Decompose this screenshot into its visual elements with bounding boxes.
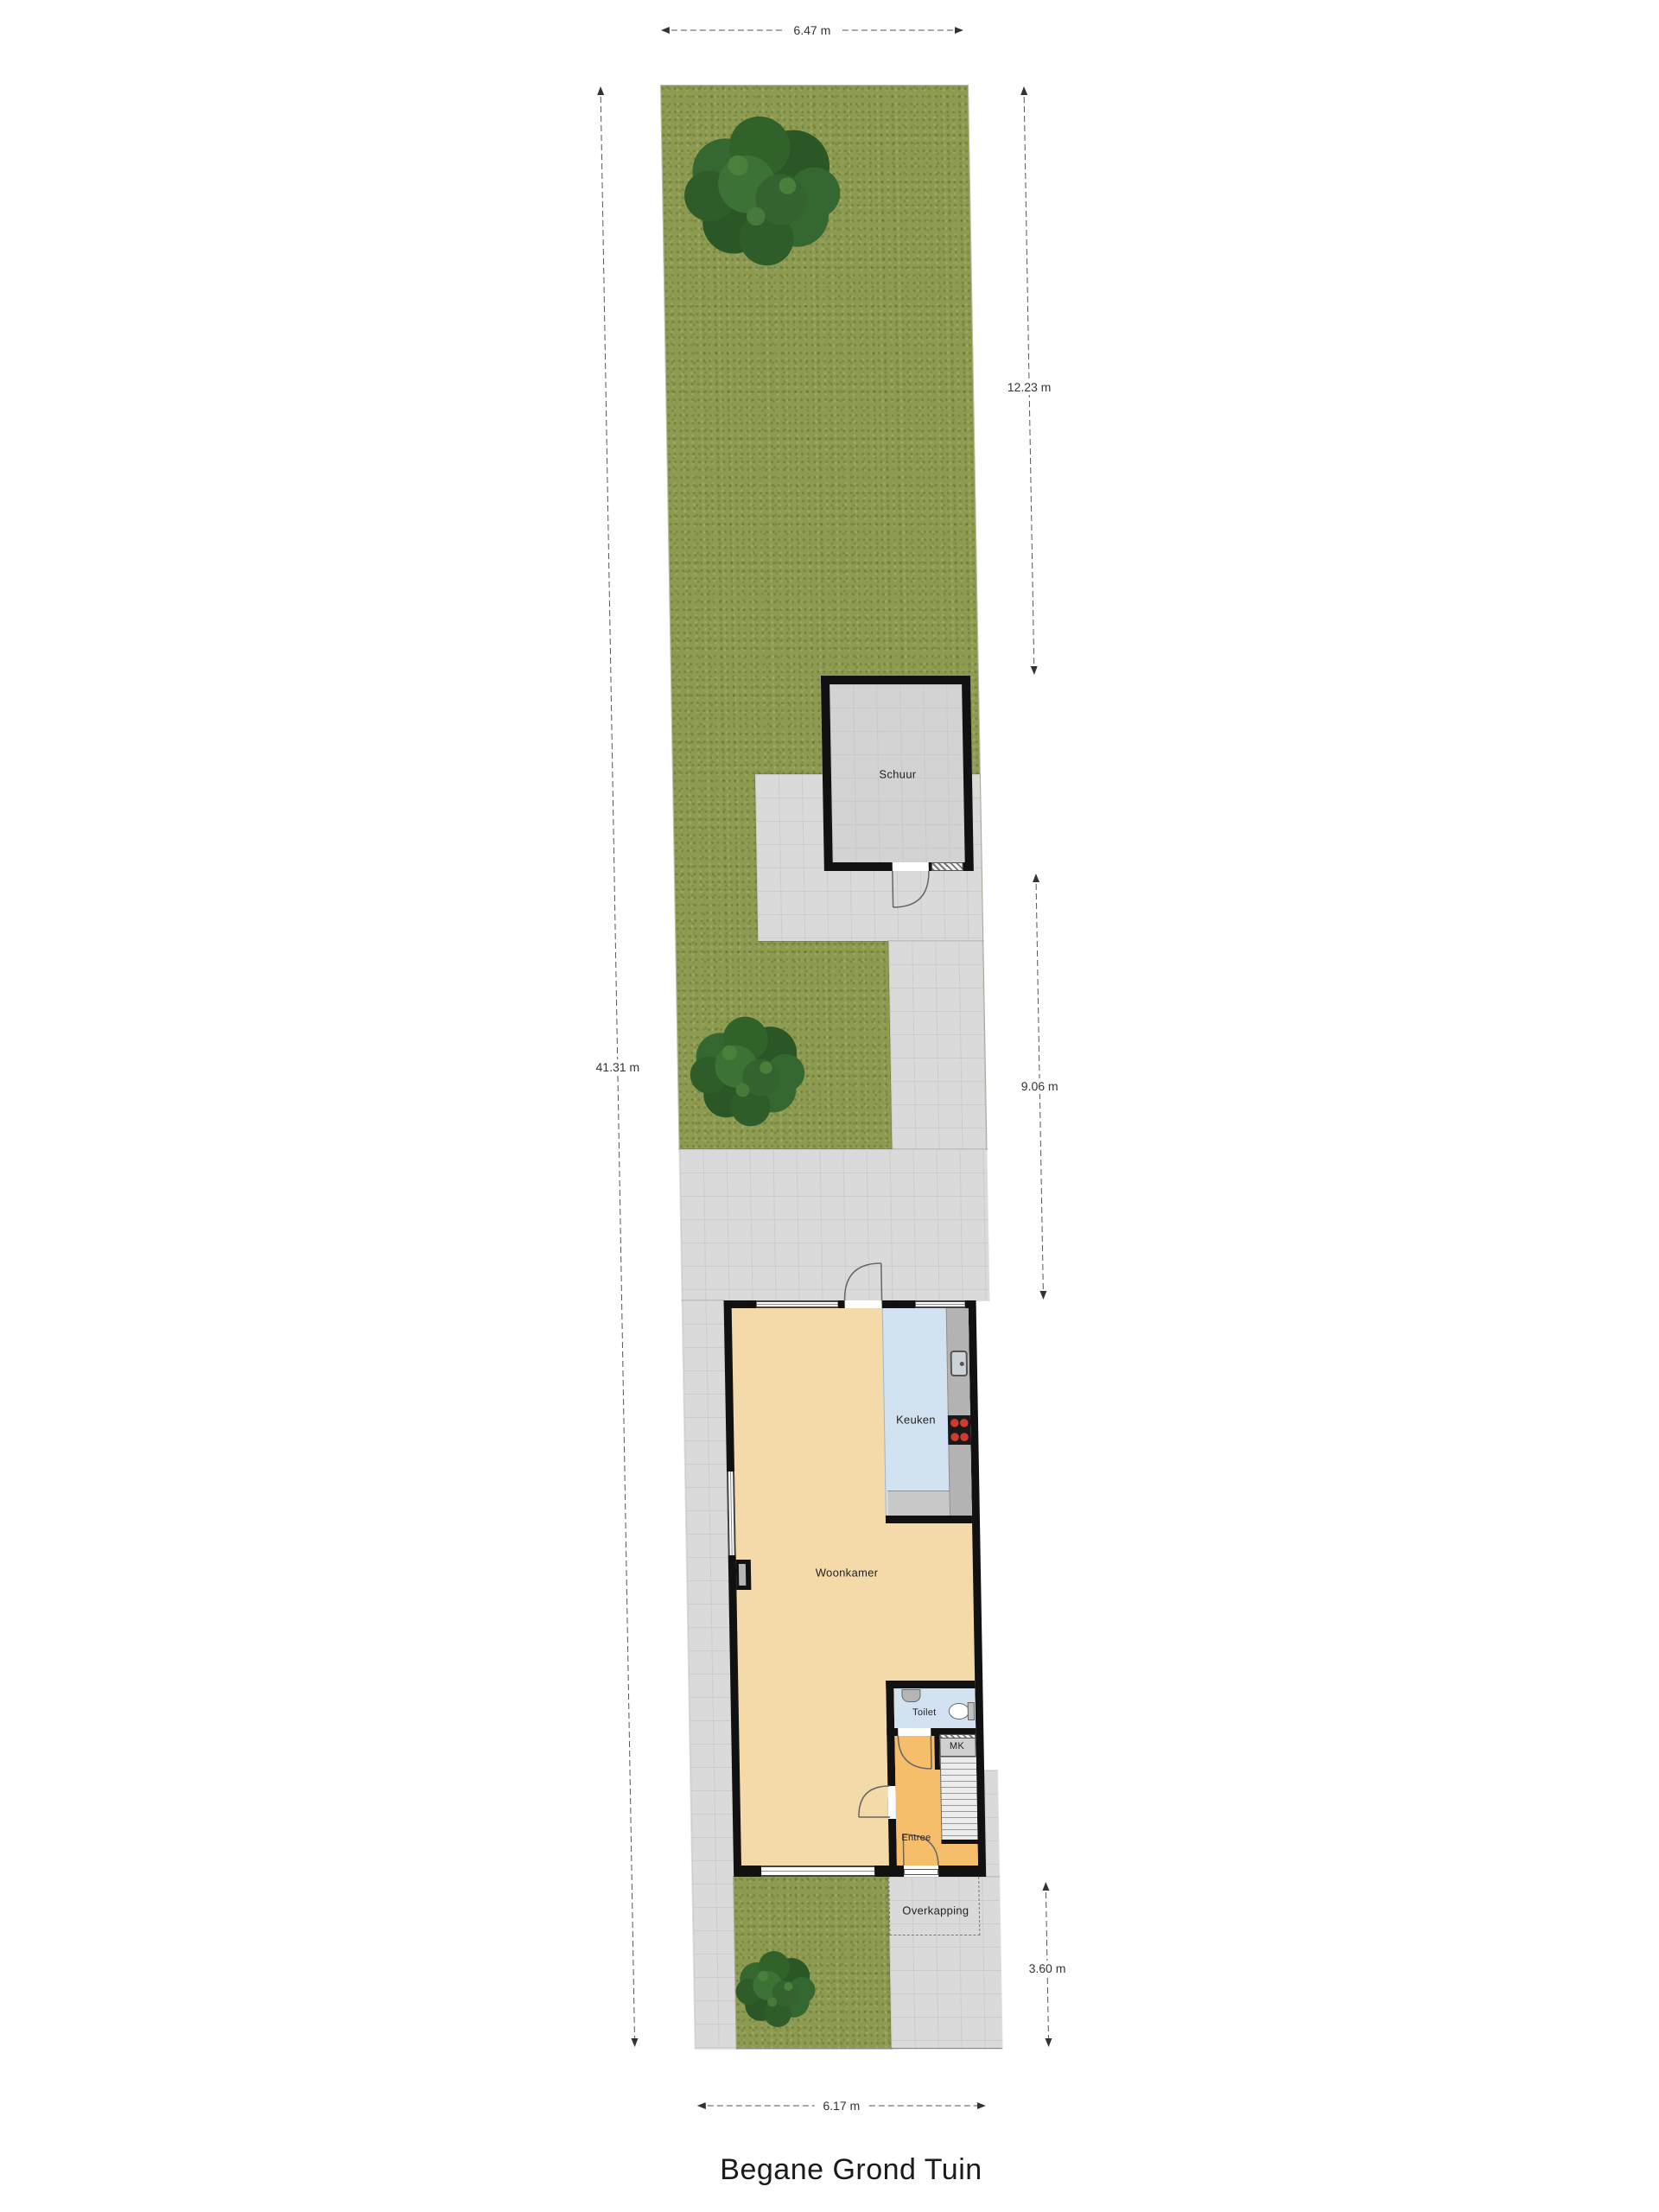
toilet-handbasin [901, 1689, 920, 1702]
kitchen-cabinets [887, 1491, 950, 1516]
front-door-leaf [904, 1869, 938, 1875]
rear-window-right [916, 1300, 965, 1308]
rear-terrace-paving [679, 1149, 988, 1300]
side-window-living [727, 1471, 736, 1555]
front-garden-lawn [734, 1877, 891, 2049]
overkapping-label: Overkapping [902, 1904, 969, 1917]
shed-label: Schuur [879, 768, 916, 781]
entree-label: Entree [901, 1833, 931, 1843]
toilet-door-opening [898, 1728, 931, 1736]
shed-window [931, 862, 963, 871]
hall-floor-lower [937, 1843, 978, 1866]
stairs-base [941, 1840, 977, 1844]
kitchen-bottom-wall [886, 1516, 972, 1523]
floorplan-page: 6.47 m 12.23 m 41.31 m 9.06 m [0, 0, 1659, 2212]
svg-text:12.23 m: 12.23 m [1007, 380, 1052, 394]
dimension-upper-garden: 12.23 m [996, 87, 1062, 674]
rear-window-left [757, 1300, 838, 1308]
mk-label: MK [950, 1741, 964, 1751]
svg-text:6.47 m: 6.47 m [793, 23, 830, 37]
chimney-inset [739, 1564, 746, 1586]
kitchen-label: Keuken [896, 1414, 936, 1427]
kitchen-counter [946, 1308, 972, 1516]
page-title: Begane Grond Tuin [720, 2153, 982, 2187]
dimension-middle-garden: 9.06 m [1008, 874, 1071, 1299]
toilet-bowl-icon [949, 1703, 969, 1719]
cooktop-icon [948, 1415, 971, 1445]
front-window [761, 1866, 874, 1877]
sink-icon [950, 1351, 969, 1376]
svg-text:6.17 m: 6.17 m [823, 2099, 860, 2113]
dimension-bottom-width: 6.17 m [698, 2098, 985, 2113]
site-plan: 6.47 m 12.23 m 41.31 m 9.06 m [661, 86, 1002, 2049]
side-path-right [984, 1770, 999, 1877]
toilet-top-wall [886, 1681, 975, 1688]
shed-door-opening [893, 862, 929, 871]
hall-door-opening [887, 1786, 896, 1819]
toilet-cistern [968, 1702, 975, 1720]
dimension-front-garden: 3.60 m [1018, 1883, 1076, 2046]
living-room-label: Woonkamer [816, 1567, 879, 1580]
stairs-icon [940, 1757, 978, 1843]
dimension-top-width: 6.47 m [662, 22, 963, 38]
svg-text:9.06 m: 9.06 m [1021, 1079, 1058, 1093]
mk-door [939, 1734, 976, 1738]
dimension-plot-length: 41.31 m [573, 87, 663, 2046]
back-door-opening [845, 1300, 882, 1308]
svg-text:41.31 m: 41.31 m [595, 1060, 639, 1074]
garden-path-paving [888, 941, 986, 1149]
toilet-label: Toilet [912, 1707, 937, 1718]
svg-text:3.60 m: 3.60 m [1028, 1961, 1065, 1975]
